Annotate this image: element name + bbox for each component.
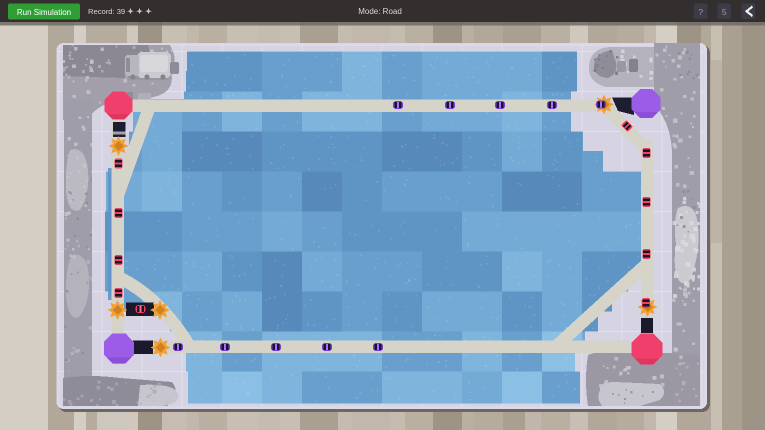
svg-text:?: ? <box>698 7 703 17</box>
svg-text:Record: 39: Record: 39 <box>88 7 125 16</box>
svg-text:Run Simulation: Run Simulation <box>17 8 71 17</box>
svg-text:5: 5 <box>722 7 727 17</box>
svg-text:Mode: Road: Mode: Road <box>358 7 402 16</box>
